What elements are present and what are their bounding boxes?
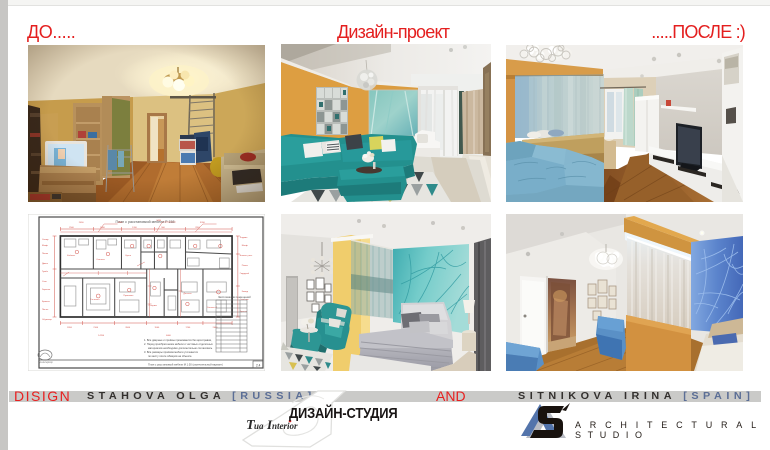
svg-text:Полка: Полка xyxy=(242,265,249,267)
svg-text:Экспликация помещений: Экспликация помещений xyxy=(218,295,251,299)
svg-text:Полки: Полки xyxy=(42,253,49,255)
svg-text:1440: 1440 xyxy=(118,222,124,224)
svg-text:Зеркало: Зеркало xyxy=(42,289,51,291)
svg-text:по месту после обмеров на объе: по месту после обмеров на объекте. xyxy=(148,354,192,358)
svg-text:Тумба: Тумба xyxy=(42,271,49,273)
svg-text:Прихожая: Прихожая xyxy=(123,295,134,297)
svg-text:2.4: 2.4 xyxy=(256,364,261,368)
svg-text:3. Все размеры проёмов мебели: 3. Все размеры проёмов мебели уточняются xyxy=(144,350,198,354)
svg-text:Лоджия: Лоджия xyxy=(240,237,248,239)
svg-text:Кровать: Кровать xyxy=(42,301,51,303)
svg-text:nterior: nterior xyxy=(272,421,298,431)
svg-text:Кабинет: Кабинет xyxy=(67,255,75,257)
svg-text:Кухня: Кухня xyxy=(125,255,132,257)
svg-text:Диван: Диван xyxy=(42,263,49,265)
svg-text:STUDIO: STUDIO xyxy=(575,430,649,440)
svg-text:Стол: Стол xyxy=(42,281,48,283)
svg-text:Комод: Комод xyxy=(242,291,249,293)
svg-text:План с расстановкой мебели М 1: План с расстановкой мебели М 1:50 (оконч… xyxy=(148,363,223,367)
svg-text:Балкон утеп.: Балкон утеп. xyxy=(240,255,253,257)
svg-text:2090: 2090 xyxy=(79,222,85,224)
svg-text:14700: 14700 xyxy=(98,335,105,337)
svg-text:1. Все дверные и проёмы приним: 1. Все дверные и проёмы принимаются без … xyxy=(144,338,212,342)
svg-text:Гардероб: Гардероб xyxy=(240,273,250,275)
svg-text:Пенал: Пенал xyxy=(42,309,49,311)
svg-text:2100: 2100 xyxy=(93,327,99,329)
svg-text:3200: 3200 xyxy=(200,222,206,224)
svg-text:Детская: Детская xyxy=(184,293,193,295)
svg-text:Сниму: Сниму xyxy=(42,239,49,241)
svg-text:ua: ua xyxy=(254,421,264,431)
svg-text:Шкаф: Шкаф xyxy=(42,244,48,247)
svg-text:1900: 1900 xyxy=(154,327,160,329)
svg-text:1200: 1200 xyxy=(132,227,138,229)
svg-text:2500: 2500 xyxy=(69,227,75,229)
svg-text:Гостиная: Гостиная xyxy=(90,299,100,301)
svg-text:6400: 6400 xyxy=(166,335,172,337)
svg-text:Обувница: Обувница xyxy=(42,319,53,321)
svg-text:1700: 1700 xyxy=(186,327,192,329)
svg-text:ARCHITECTURAL: ARCHITECTURAL xyxy=(575,420,758,430)
svg-text:Шкаф: Шкаф xyxy=(242,244,248,247)
svg-text:материалов необходимо дополнит: материалов необходимо дополнительно согл… xyxy=(148,346,213,350)
svg-text:2600: 2600 xyxy=(125,327,131,329)
svg-text:туа интериор: туа интериор xyxy=(38,361,53,364)
svg-text:3200: 3200 xyxy=(67,327,73,329)
svg-text:2480: 2480 xyxy=(156,220,162,222)
svg-text:Спальня: Спальня xyxy=(96,259,105,261)
svg-text:2. Перед приобретением мебели: 2. Перед приобретением мебели и чистовых… xyxy=(144,342,213,346)
svg-text:Санузел: Санузел xyxy=(149,305,158,307)
